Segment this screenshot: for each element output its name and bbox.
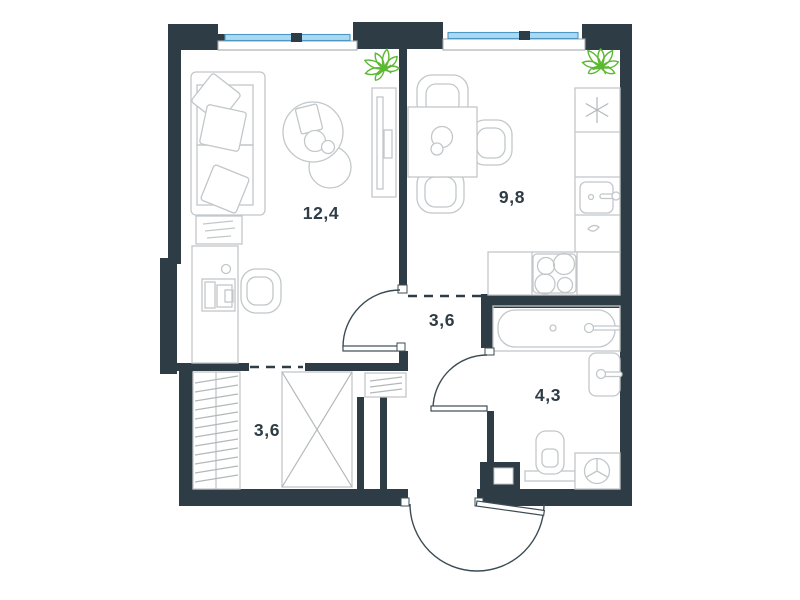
door-living [343, 285, 407, 351]
window-mullion [291, 33, 302, 42]
sofa-pillow [199, 104, 246, 151]
wall-left-upper [168, 24, 181, 264]
bathtub [493, 306, 620, 351]
room-living: 12,4 [191, 46, 404, 363]
floor-plan: 12,4 [0, 0, 800, 600]
tv-unit [372, 88, 396, 197]
desk-chair [241, 269, 281, 313]
wall-bathroom-left-upper [481, 308, 493, 348]
door-swing-arc [343, 290, 400, 347]
wall-shaft-right [380, 397, 387, 489]
door-swing-arc [433, 355, 487, 409]
room-hallway: 3,6 [365, 310, 455, 397]
room-area-label: 4,3 [535, 385, 561, 405]
shelf-wardrobe [193, 372, 240, 489]
wall-living-hall-left [177, 363, 249, 371]
coffee-table [283, 102, 351, 188]
niche-shelf [365, 373, 406, 397]
door-bathroom [431, 348, 494, 411]
wall-living-kitchen [399, 42, 407, 290]
room-area-label: 3,6 [254, 420, 280, 440]
sofa [191, 72, 265, 215]
room-bathroom: 4,3 [493, 306, 622, 489]
duct-shaft-opening [494, 468, 513, 484]
wall-bottom-right [477, 489, 632, 506]
plant-icon [361, 46, 404, 85]
side-console [196, 216, 242, 244]
wall-right [620, 24, 632, 506]
wall-bathroom-left-lower [487, 411, 494, 463]
hanging-wardrobe [282, 372, 352, 487]
wall-living-hall-right [305, 363, 408, 371]
window-mullion [519, 31, 530, 40]
table-vase [431, 143, 443, 155]
wall-shaft-left [357, 397, 364, 489]
floor-plan-drawing: 12,4 [0, 0, 800, 600]
door-leaf [343, 346, 401, 351]
door-entrance [401, 498, 544, 571]
dining-set [408, 75, 512, 213]
room-area-label: 3,6 [429, 310, 455, 330]
wall-bottom-left [179, 489, 408, 506]
wall-left-lower [179, 366, 193, 506]
door-leaf [431, 406, 487, 411]
door-swing-arc [410, 504, 544, 571]
window-kitchen [443, 31, 585, 50]
desk [192, 246, 238, 363]
room-area-label: 9,8 [499, 187, 525, 207]
bathroom-sink [589, 353, 622, 396]
room-wardrobe-hallway: 3,6 [193, 372, 352, 489]
window-living [218, 33, 357, 50]
washing-machine [575, 453, 620, 489]
room-area-label: 12,4 [303, 203, 339, 223]
room-kitchen: 9,8 [408, 44, 622, 295]
wall-left-middle [160, 258, 177, 374]
wall-top-middle-block [353, 22, 443, 49]
bathtub-drain [550, 325, 556, 331]
toilet [525, 431, 575, 481]
